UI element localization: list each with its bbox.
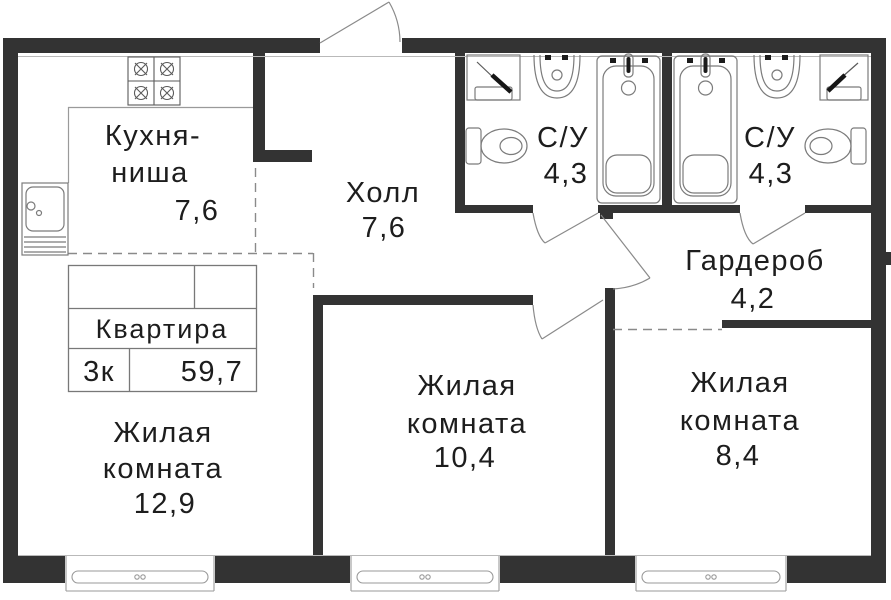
window-icon [351, 556, 499, 591]
entrance-door-swing-icon [320, 2, 400, 43]
bathroom1-label: С/У [537, 122, 589, 154]
wall [402, 38, 886, 53]
bathroom2-label: С/У [744, 122, 796, 154]
living2-label: Жилая [417, 370, 516, 402]
wall [313, 295, 323, 555]
bathroom1-door-swing-icon [533, 213, 598, 243]
living1-label: комната [103, 453, 223, 485]
bathroom2-door-swing-icon [740, 213, 805, 244]
windows [66, 556, 786, 591]
wall [215, 555, 350, 583]
wall [253, 150, 312, 162]
wall [598, 205, 740, 213]
washing-machine-icon [467, 55, 520, 100]
living3-label: Жилая [690, 367, 789, 399]
kitchen-label: Кухня- [105, 120, 201, 152]
living2-area: 10,4 [434, 442, 496, 474]
wardrobe-door-swing-icon [601, 215, 650, 289]
wall [805, 205, 871, 213]
wall [3, 38, 18, 583]
bathroom2-area: 4,3 [749, 158, 794, 190]
toilet-icon [466, 128, 527, 164]
kitchen-area: 7,6 [175, 195, 220, 227]
wall [871, 38, 886, 583]
kitchen-label: ниша [111, 157, 189, 189]
bathtub-icon [597, 54, 660, 203]
legend-title: Квартира [96, 314, 229, 344]
stove-icon [128, 57, 180, 105]
labels: Кухня- ниша 7,6 Холл 7,6 С/У 4,3 С/У 4,3… [83, 120, 825, 520]
living3-label: комната [680, 405, 800, 437]
wall [313, 295, 533, 305]
wall [500, 555, 635, 583]
bathroom-sink-icon [754, 55, 800, 98]
kitchen-sink-icon [22, 183, 68, 255]
window-icon [636, 556, 786, 591]
living2-door-swing-icon [533, 300, 603, 339]
wall [662, 53, 672, 213]
wall [722, 320, 871, 328]
wall [3, 555, 65, 583]
toilet-icon [805, 128, 866, 164]
wardrobe-label: Гардероб [685, 245, 825, 277]
living2-label: комната [407, 408, 527, 440]
wall-tick [884, 252, 891, 265]
window-icon [66, 556, 214, 591]
legend-total-area: 59,7 [181, 356, 243, 388]
wardrobe-area: 4,2 [731, 283, 776, 315]
floor-plan: Кухня- ниша 7,6 Холл 7,6 С/У 4,3 С/У 4,3… [0, 0, 891, 600]
washing-machine-icon [820, 55, 868, 100]
bathtub-icon [674, 54, 737, 203]
floor-plan-drawing: Кухня- ниша 7,6 Холл 7,6 С/У 4,3 С/У 4,3… [0, 0, 891, 600]
hall-area: 7,6 [362, 212, 407, 244]
legend-rooms-count: 3к [83, 356, 115, 388]
living3-area: 8,4 [716, 440, 761, 472]
wall [455, 53, 465, 213]
wall [253, 53, 265, 162]
bathroom1-area: 4,3 [544, 158, 589, 190]
living1-label: Жилая [113, 417, 212, 449]
bathroom-sink-icon [534, 55, 580, 98]
wall [787, 555, 886, 583]
wall [455, 205, 533, 213]
living1-area: 12,9 [134, 488, 196, 520]
wall [605, 288, 615, 555]
wall [3, 38, 320, 53]
hall-label: Холл [346, 177, 420, 209]
